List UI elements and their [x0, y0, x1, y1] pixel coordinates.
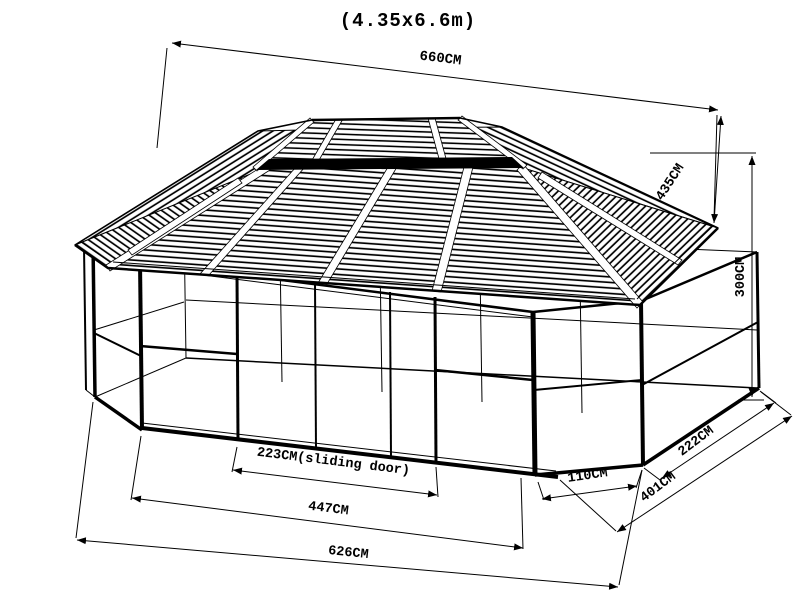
dim-end-base-width: 401CM — [560, 392, 792, 532]
dim-roof-end-width-label: 435CM — [654, 162, 689, 204]
drawing-canvas: 660CM 435CM 300CM 223CM(sliding door) 44… — [0, 0, 800, 600]
dim-end-base-width-label: 401CM — [638, 470, 679, 506]
drawing-title: (4.35x6.6m) — [340, 10, 476, 32]
cap-eave-band — [256, 157, 524, 170]
dim-corner-panel: 110CM — [538, 466, 642, 500]
dim-overall-roof-length-label: 660CM — [419, 49, 463, 70]
dim-front-section: 447CM — [131, 436, 523, 549]
gazebo-technical-drawing: 660CM 435CM 300CM 223CM(sliding door) 44… — [0, 0, 800, 600]
dim-side-panel: 222CM — [644, 391, 776, 480]
roof — [75, 116, 718, 308]
dim-front-section-label: 447CM — [307, 500, 349, 520]
dim-height-label: 300CM — [734, 257, 749, 298]
dim-corner-panel-label: 110CM — [567, 466, 609, 486]
dim-base-length-label: 626CM — [327, 544, 369, 563]
